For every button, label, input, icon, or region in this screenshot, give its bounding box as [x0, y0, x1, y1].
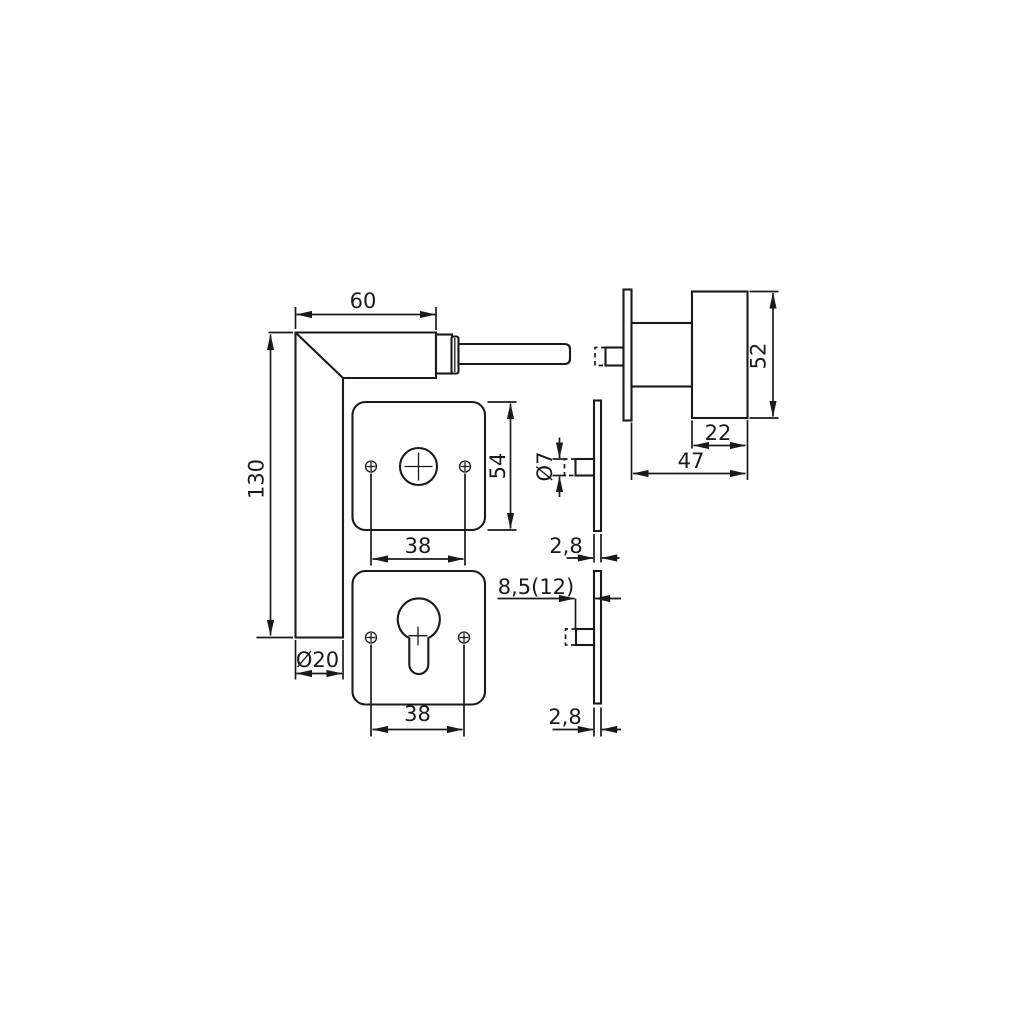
screw-hole-left [366, 632, 377, 643]
dim-label-28-bottom: 2,8 [548, 705, 581, 729]
dim-label-38-top: 38 [405, 534, 432, 558]
dim-lever-rosette-thickness: 2,8 [549, 534, 619, 563]
cylinder-rosette-front-view [353, 571, 486, 705]
dim-label-130: 130 [245, 459, 269, 499]
dim-cylinder-projection: 8,5(12) [498, 575, 622, 629]
door-hardware-dimension-drawing: 60 130 Ø20 54 38 [0, 0, 1024, 1024]
dim-lever-head-width: 60 [296, 289, 437, 330]
dim-label-54: 54 [486, 453, 510, 480]
dim-spindle-diameter: Ø7 [533, 438, 566, 498]
dim-label-47: 47 [678, 449, 705, 473]
dim-label-28-top: 2,8 [549, 534, 582, 558]
dim-grip-diameter: Ø20 [296, 640, 344, 680]
dim-label-22: 22 [705, 421, 732, 445]
dim-label-d7: Ø7 [533, 452, 557, 482]
screw-hole-right [460, 461, 471, 472]
dim-label-52: 52 [747, 343, 771, 370]
dim-knob-diameter: 52 [747, 292, 779, 419]
dim-lever-rosette-size: 54 [486, 402, 517, 530]
dim-label-38-bottom: 38 [404, 702, 431, 726]
dim-label-85-12: 8,5(12) [498, 575, 575, 599]
dim-lever-total-length: 130 [245, 333, 294, 638]
dim-cylinder-rosette-thickness: 2,8 [548, 705, 621, 737]
screw-hole-right [459, 632, 470, 643]
technical-drawing-page: 60 130 Ø20 54 38 [0, 0, 1024, 1024]
dim-label-60: 60 [350, 289, 377, 313]
screw-hole-left [366, 461, 377, 472]
lever-rosette-side-view [565, 401, 602, 532]
knob-side-view [595, 290, 748, 421]
dim-label-d20: Ø20 [296, 648, 339, 672]
